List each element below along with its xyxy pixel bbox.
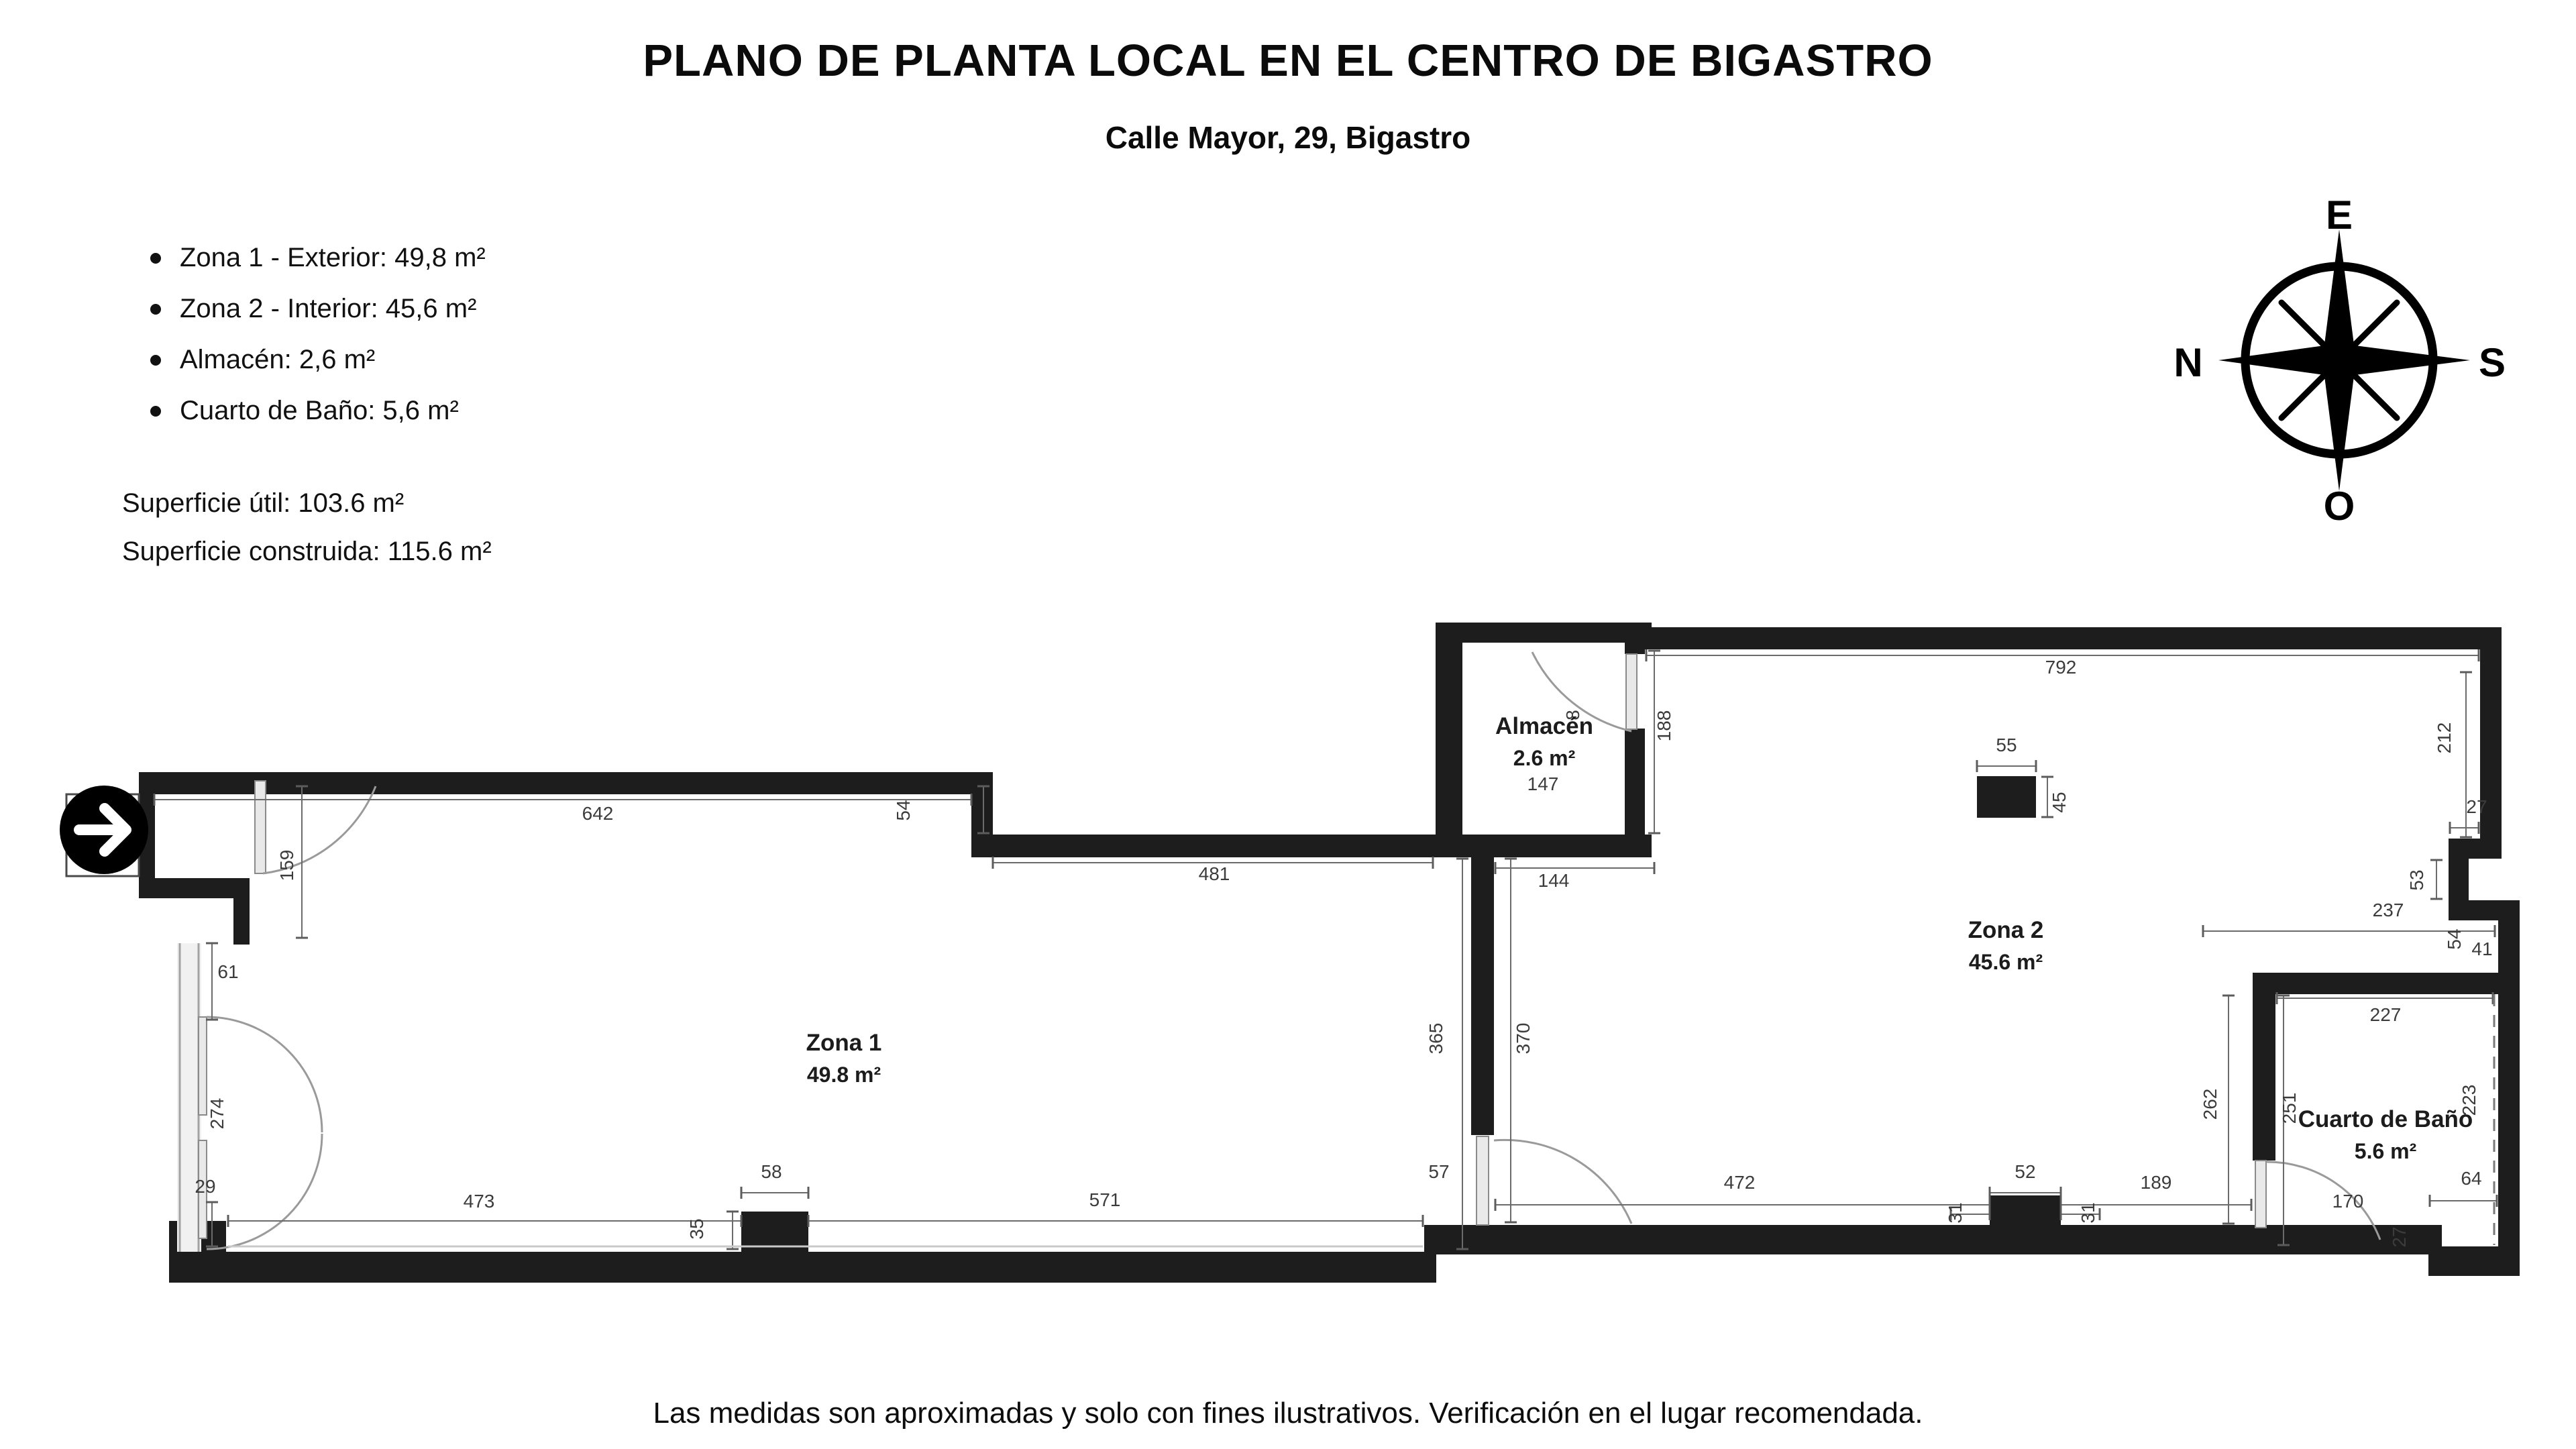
dimension-label: 274	[207, 1098, 227, 1130]
double-door-leaf	[199, 1017, 207, 1115]
dimension-label: 61	[217, 961, 238, 982]
dimension-lines	[154, 651, 2497, 1249]
almacen-door-panel	[1626, 654, 1637, 729]
entrance-arrow-icon	[60, 786, 148, 874]
entrance-door-panel	[255, 781, 266, 873]
compass-n: N	[2173, 340, 2202, 385]
room-area: 45.6 m²	[1969, 950, 2043, 974]
page: PLANO DE PLANTA LOCAL EN EL CENTRO DE BI…	[0, 0, 2576, 1449]
dimension-label: 212	[2434, 722, 2455, 754]
dimension-label: 370	[1513, 1023, 1534, 1055]
dimension-label: 188	[1654, 710, 1674, 742]
dimension-label: 57	[1428, 1161, 1449, 1182]
dimension-label: 54	[2444, 928, 2465, 949]
dimension-label: 52	[2015, 1161, 2035, 1182]
floor-plan: 6425448115961274294735835571573653701478…	[0, 0, 2576, 1449]
compass-s: S	[2479, 340, 2506, 385]
dimension-label: 53	[2406, 869, 2427, 890]
room-name: Zona 2	[1968, 917, 2044, 943]
disclaimer-note: Las medidas son aproximadas y solo con f…	[0, 1397, 2576, 1430]
dimension-label: 45	[2049, 792, 2070, 812]
compass-rose-icon: E N S O	[2173, 193, 2506, 529]
dimension-label: 571	[1089, 1189, 1121, 1210]
dimension-label: 189	[2141, 1172, 2172, 1193]
storefront-glazing	[177, 943, 201, 1252]
dimension-label: 27	[2389, 1226, 2410, 1247]
dimension-label: 472	[1724, 1172, 1756, 1193]
dimension-label: 227	[2370, 1004, 2402, 1025]
dimension-label: 58	[761, 1161, 782, 1182]
dimension-label: 262	[2200, 1089, 2220, 1120]
dimension-labels: 6425448115961274294735835571573653701478…	[195, 657, 2492, 1248]
dimension-label: 31	[2078, 1202, 2098, 1223]
dimension-label: 147	[1527, 773, 1559, 794]
dimension-label: 170	[2332, 1191, 2364, 1212]
divider-door-panel	[1477, 1136, 1489, 1225]
dimension-label: 642	[582, 803, 614, 824]
dimension-label: 251	[2279, 1093, 2300, 1124]
dimension-label: 365	[1426, 1023, 1446, 1055]
dimension-label: 159	[276, 850, 297, 881]
dimension-label: 41	[2471, 938, 2492, 959]
dimension-label: 237	[2373, 900, 2404, 920]
dimension-label: 64	[2461, 1168, 2481, 1189]
room-area: 2.6 m²	[1513, 746, 1575, 770]
room-area: 5.6 m²	[2355, 1139, 2416, 1163]
room-name: Zona 1	[806, 1030, 882, 1056]
compass-e: E	[2326, 193, 2353, 237]
dimension-label: 54	[893, 800, 914, 820]
pillar	[1977, 776, 2036, 818]
room-name: Almacén	[1495, 713, 1593, 739]
dimension-label: 29	[195, 1176, 215, 1197]
dimension-label: 31	[1945, 1202, 1966, 1223]
divider-door-arc	[1494, 1140, 1631, 1224]
room-name: Cuarto de Baño	[2298, 1106, 2473, 1132]
bathroom-door-panel	[2255, 1161, 2266, 1228]
doors	[199, 652, 2380, 1249]
dimension-label: 35	[686, 1218, 707, 1239]
dimension-label: 144	[1538, 870, 1570, 891]
dimension-label: 55	[1996, 735, 2017, 755]
compass-o: O	[2324, 484, 2355, 529]
room-area: 49.8 m²	[807, 1063, 881, 1087]
dimension-label: 473	[464, 1191, 495, 1212]
dimension-label: 27	[2466, 796, 2487, 817]
dimension-label: 792	[2045, 657, 2077, 678]
dimension-label: 481	[1199, 863, 1230, 884]
